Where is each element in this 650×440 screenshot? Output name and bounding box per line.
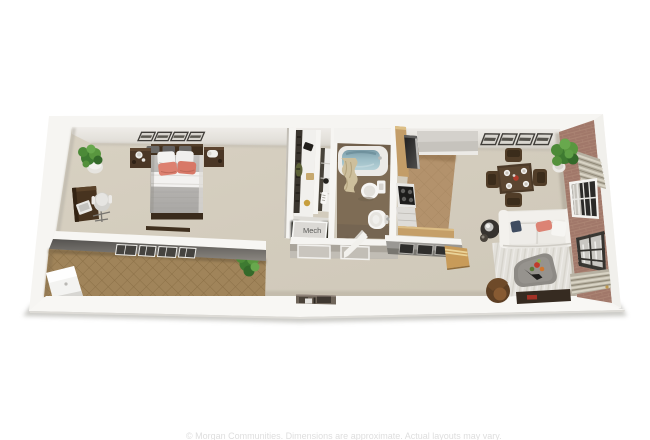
svg-text:Mech: Mech — [303, 226, 321, 235]
svg-text:© Morgan Communities. Dimensio: © Morgan Communities. Dimensions are app… — [186, 431, 502, 440]
